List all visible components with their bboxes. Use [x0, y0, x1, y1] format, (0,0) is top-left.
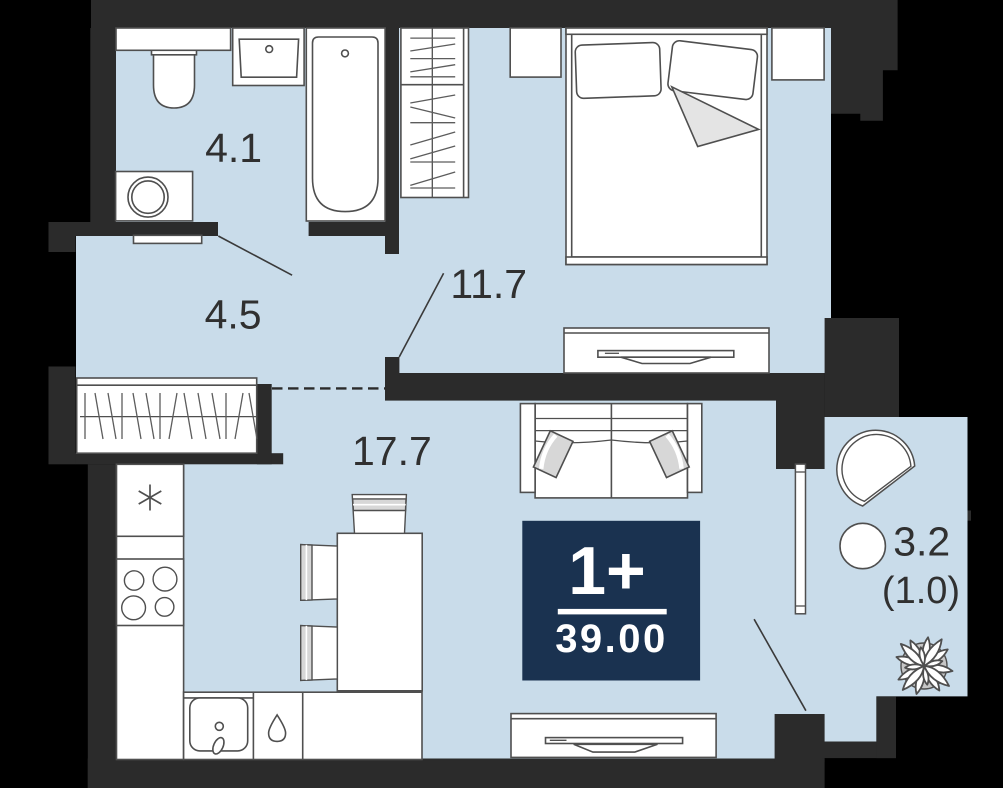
svg-text:1+: 1+ — [568, 533, 646, 609]
svg-text:4.5: 4.5 — [205, 291, 262, 337]
svg-text:(1.0): (1.0) — [882, 570, 960, 612]
svg-text:4.1: 4.1 — [205, 125, 262, 171]
svg-text:17.7: 17.7 — [352, 428, 432, 474]
svg-text:11.7: 11.7 — [450, 261, 527, 307]
svg-text:39.00: 39.00 — [555, 617, 668, 661]
svg-text:3.2: 3.2 — [893, 518, 950, 564]
